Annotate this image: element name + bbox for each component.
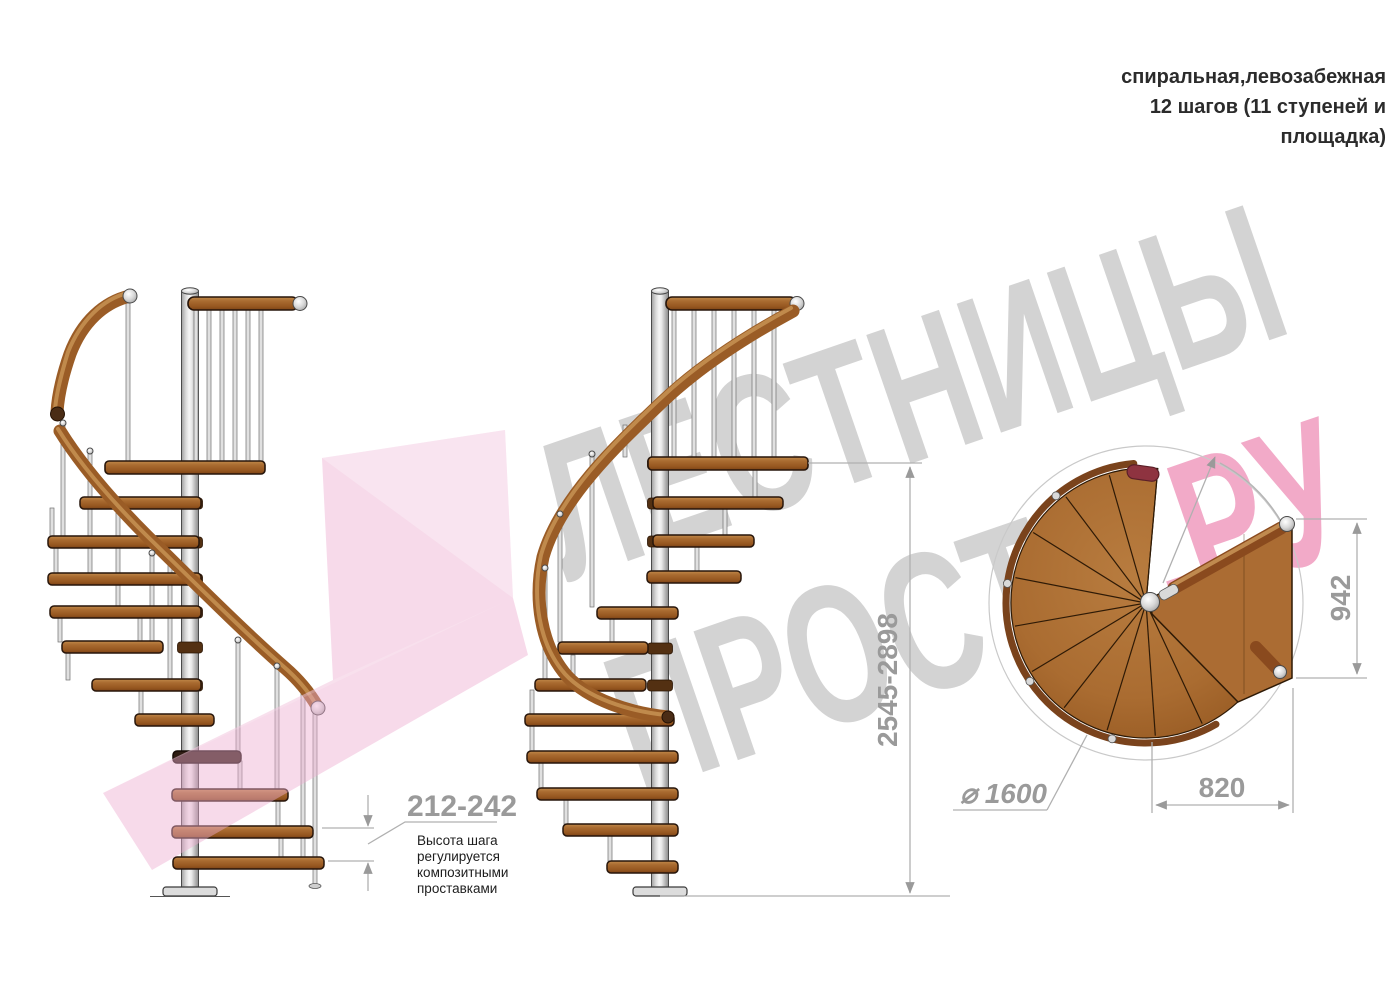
step [135,714,214,726]
dimension-942: 942 [1296,519,1367,678]
step-height-note-line1: Высота шага [417,833,498,848]
baluster [54,546,58,574]
baluster [692,310,696,458]
baluster [610,618,614,642]
step [558,642,648,654]
plan-view [989,446,1303,760]
lower-rail-cap [1274,666,1287,679]
baluster-joint [235,637,241,643]
baluster-top [1108,735,1116,743]
baluster [279,836,283,858]
handrail-cap [123,289,137,303]
baluster [194,310,198,462]
baluster [58,616,62,642]
step [597,607,678,619]
baluster-foot [309,884,321,889]
rotation-arc [1220,463,1282,523]
baluster [116,513,120,607]
collar [648,680,673,691]
baluster-joint [589,451,595,457]
pole-base [163,887,217,896]
baluster-joint [87,448,93,454]
step-height-note-line4: проставками [417,881,497,896]
dimension-diameter: ⌀ 1600 [953,735,1087,810]
dimension-step-height: 212-242 Высота шага регулируется компози… [322,790,517,896]
pole-top-cap [182,288,199,294]
railing-bar-cap [293,297,307,311]
baluster [126,303,130,463]
baluster-joint [557,511,563,517]
baluster [276,799,280,827]
baluster [246,310,250,462]
baluster-top [1026,677,1034,685]
step-height-note-line3: композитными [417,865,508,880]
step [563,824,678,836]
baluster [772,310,776,458]
baluster-joint [542,565,548,571]
title-line1: спиральная,левозабежная [1121,62,1386,92]
drawing-title: спиральная,левозабежная 12 шагов (11 сту… [1121,62,1386,152]
step-height-note-line2: регулируется [417,849,500,864]
dimension-total-height: 2545-2898 [660,463,950,896]
step [537,788,678,800]
baluster [259,310,263,462]
baluster-joint [274,663,280,669]
baluster [732,310,736,458]
step [647,571,741,583]
dim-platform-width: 820 [1199,772,1246,803]
baluster-joint [60,420,66,426]
baluster [695,546,699,571]
baluster [608,833,612,861]
platform-board [105,461,265,474]
step [50,606,201,618]
dim-diameter: ⌀ 1600 [960,778,1047,809]
dim-platform-depth: 942 [1325,575,1356,622]
baluster [220,310,224,462]
step [527,751,678,763]
baluster [564,797,568,824]
baluster [50,508,54,537]
pole-top-cap [652,288,669,294]
platform-railing [188,297,307,463]
baluster-top [1052,492,1060,500]
baluster [233,310,237,462]
pole-base [633,887,687,896]
collar [648,643,673,654]
baluster [66,652,70,680]
platform-board [648,457,808,470]
railing-bar [666,297,796,310]
pole-top-ball [1141,593,1160,612]
collar [178,642,203,653]
baluster [723,509,727,535]
handrail-cap [1280,517,1295,532]
baluster [207,310,211,462]
baluster [712,310,716,458]
step [653,535,754,547]
step [607,861,678,873]
title-line2: 12 шагов (11 ступеней и [1121,92,1386,122]
page: ЛЕСТНИЦЫ ПРОСТО.РУ [0,0,1400,1000]
step [48,536,199,548]
baluster-top [1003,580,1011,588]
railing-bar [188,297,298,310]
handrail-end [51,407,65,421]
leader-line [1047,735,1087,810]
center-pole [652,291,669,891]
baluster-joint [149,550,155,556]
dim-step-height: 212-242 [407,790,517,823]
baluster [530,690,534,714]
handrail-end [662,711,674,723]
step [80,497,201,509]
elevation-view-middle [525,288,808,896]
baluster [150,551,154,642]
baluster [539,760,543,788]
step [92,679,201,691]
step [173,857,324,869]
step [62,641,163,653]
baluster [139,690,143,715]
step [653,497,783,509]
dim-total-height: 2545-2898 [872,613,903,747]
baluster [753,470,757,497]
title-line3: площадка) [1121,122,1386,152]
